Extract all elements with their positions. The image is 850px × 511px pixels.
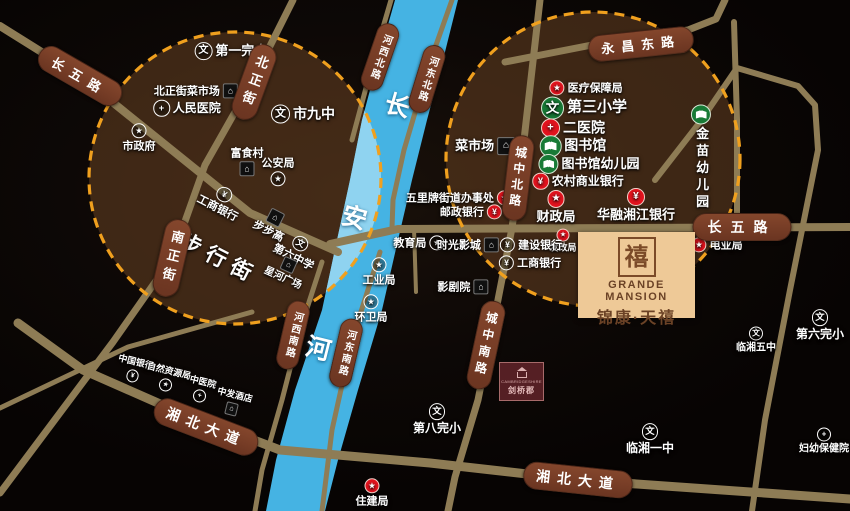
- place-label: 金苗幼儿园: [694, 127, 708, 212]
- building-icon: ⌂: [473, 279, 488, 294]
- place-label: 第六完小: [796, 328, 844, 341]
- place-label: 建设银行: [518, 239, 562, 251]
- place-label: 富食村: [231, 147, 264, 159]
- road-badge-changwu-lu-east: 长五路: [693, 213, 792, 241]
- star-icon: ★: [547, 190, 565, 208]
- star-icon: ★: [549, 80, 564, 95]
- bank-icon: ¥: [125, 368, 141, 384]
- place-label: 医疗保障局: [568, 82, 623, 94]
- building-icon: ⌂: [484, 237, 499, 252]
- place-label: 工商银行: [517, 257, 561, 269]
- book-icon: [538, 154, 558, 174]
- place-diliu-wanxiao: 文第六完小: [796, 309, 844, 341]
- school-icon: 文: [541, 97, 564, 120]
- place-jinmiao-youeryuan: 金苗幼儿园: [691, 104, 711, 211]
- place-renmin-yiyuan: +人民医院: [153, 100, 221, 117]
- place-label: 市九中: [293, 106, 335, 121]
- school-icon: 文: [749, 326, 763, 340]
- place-huarong-xiangjiang-yinhang: ¥华融湘江银行: [597, 188, 675, 222]
- road-badge-nanzheng-jie: 南正街: [150, 216, 194, 299]
- school-icon: 文: [195, 42, 213, 60]
- place-river-char-chang: 长: [381, 90, 413, 123]
- project-seal-character: 禧: [625, 245, 649, 269]
- hospital-icon: +: [817, 427, 831, 441]
- cambridgeshire-card: CAMBRIDGESHIRE 剑桥郡: [499, 362, 544, 401]
- place-zhongfa-jiudian: ⌂中发酒店: [213, 387, 254, 420]
- place-huanweiju: ★环卫局: [355, 294, 388, 323]
- place-label: 邮政银行: [440, 206, 484, 218]
- place-label: 妇幼保健院: [799, 444, 849, 455]
- place-label: 影剧院: [437, 281, 470, 293]
- building-icon: ⌂: [224, 401, 240, 417]
- place-ziran-ziyuanju: ★自然资源局: [142, 362, 192, 397]
- gov-icon: ★: [371, 257, 386, 272]
- place-diba-wanxiao: 文第八完小: [413, 403, 461, 435]
- place-gongshang-yinhang-west: ¥工商银行: [195, 178, 248, 224]
- place-nongcun-shangye-yinhang: ¥农村商业银行: [532, 173, 624, 190]
- road-badge-changwu-lu-west: 长五路: [33, 41, 127, 111]
- project-logo-card: 禧 GRANDE MANSION 锦康·天禧: [578, 232, 695, 318]
- place-label: 教育局: [393, 237, 426, 249]
- star-icon: ★: [364, 478, 379, 493]
- place-yingjuyuan: ⌂影剧院: [437, 279, 488, 294]
- place-label: 中医院: [188, 375, 217, 391]
- project-name-en: GRANDE MANSION: [578, 279, 695, 303]
- place-river-char-an: 安: [338, 202, 370, 235]
- place-label: 第八完小: [413, 422, 461, 435]
- building-body-icon: [517, 372, 527, 378]
- place-shijiuzhong: 文市九中: [271, 105, 335, 124]
- bank-icon: ¥: [499, 255, 514, 270]
- place-zhujianju: ★住建局: [356, 478, 389, 507]
- place-label: 时光影城: [437, 239, 481, 251]
- place-gongshang-yinhang-east: ¥工商银行: [499, 255, 561, 270]
- place-label: 人民医院: [173, 101, 221, 114]
- school-icon: 文: [429, 403, 446, 420]
- road-badge-hedong-nanlu: 河东南路: [327, 316, 365, 389]
- place-wulipai-jiedao-banshichu: ★五里牌街道办事处: [406, 190, 512, 205]
- place-label: 财政局: [536, 210, 575, 224]
- place-fuyou-baojianyuan: +妇幼保健院: [799, 427, 849, 454]
- place-zhongyiyuan: +中医院: [185, 375, 217, 406]
- gov-icon: ★: [131, 123, 146, 138]
- place-jianshe-yinhang: ¥建设银行: [500, 237, 562, 252]
- place-caizhengju: ★财政局: [536, 190, 575, 224]
- place-label: 五里牌街道办事处: [406, 192, 494, 204]
- place-tushuguan-youeryuan: 图书馆幼儿园: [538, 154, 639, 174]
- road-badge-hedong-beilu: 河东北路: [406, 42, 448, 116]
- place-label: 临湘一中: [626, 442, 674, 455]
- place-label: 菜市场: [455, 139, 494, 153]
- school-icon: 文: [642, 423, 659, 440]
- cambridgeshire-name-en: CAMBRIDGESHIRE: [501, 379, 542, 384]
- hospital-icon: +: [192, 388, 208, 404]
- project-seal-logo: 禧: [618, 237, 656, 277]
- book-icon: [691, 104, 711, 124]
- place-linxiang-yizhong: 文临湘一中: [626, 423, 674, 455]
- place-label: 图书馆: [564, 138, 606, 153]
- bank-icon: ¥: [500, 237, 515, 252]
- place-river-char-he: 河: [303, 334, 334, 367]
- place-fushicun: ⌂富食村: [231, 147, 264, 176]
- place-label: 河: [303, 334, 334, 367]
- place-label: 华融湘江银行: [597, 208, 675, 222]
- building-icon: ⌂: [239, 161, 254, 176]
- gov-icon: ★: [270, 171, 285, 186]
- place-label: 第三小学: [567, 100, 627, 117]
- project-name-cn: 锦康·天禧: [578, 304, 695, 328]
- gov-icon: ★: [363, 294, 378, 309]
- place-label: 市政府: [123, 141, 156, 153]
- road-badge-xiangbei-dadao-east: 湘北大道: [522, 460, 634, 499]
- hospital-icon: +: [153, 100, 170, 117]
- labels-layer: 文第一完小⌂北正街菜市场+人民医院文市九中★市政府⌂富食村★公安局¥工商银行⌂步…: [0, 0, 850, 511]
- place-gonganju: ★公安局: [262, 157, 295, 186]
- place-label: 图书馆幼儿园: [562, 157, 640, 171]
- place-label: 工业局: [363, 275, 396, 287]
- place-yiliao-baozhangju: ★医疗保障局: [549, 80, 622, 95]
- place-beizhengjie-caishichang: ⌂北正街菜市场: [154, 83, 238, 98]
- school-icon: 文: [812, 309, 829, 326]
- place-label: 二医院: [563, 120, 605, 135]
- place-label: 长: [381, 90, 413, 123]
- place-shiguang-yingcheng: ⌂时光影城: [437, 237, 499, 252]
- bank-icon: ¥: [532, 173, 549, 190]
- road-badge-yongchang-donglu: 永昌东路: [587, 25, 695, 63]
- place-gongyeju: ★工业局: [363, 257, 396, 286]
- cambridgeshire-name-cn: 剑桥郡: [508, 385, 535, 396]
- road-badge-hexi-beilu: 河西北路: [358, 20, 403, 94]
- place-label: 住建局: [356, 496, 389, 508]
- bank-icon: ¥: [627, 188, 645, 206]
- place-label: 临湘五中: [736, 343, 776, 354]
- gov-icon: ★: [158, 377, 174, 393]
- location-map: 文第一完小⌂北正街菜市场+人民医院文市九中★市政府⌂富食村★公安局¥工商银行⌂步…: [0, 0, 850, 511]
- place-disan-xiaoxue: 文第三小学: [541, 97, 627, 120]
- place-shizhengfu: ★市政府: [123, 123, 156, 152]
- place-label: 安: [338, 202, 370, 235]
- bank-icon: ¥: [487, 204, 502, 219]
- place-label: 北正街菜市场: [154, 85, 220, 97]
- place-linxiang-wuzhong: 文临湘五中: [736, 326, 776, 353]
- place-caishichang: ⌂菜市场: [455, 137, 515, 155]
- building-roof-icon: [517, 367, 527, 371]
- place-label: 公安局: [262, 157, 295, 169]
- school-icon: 文: [271, 105, 290, 124]
- place-youzheng-yinhang: ¥邮政银行: [440, 204, 502, 219]
- place-label: 农村商业银行: [552, 174, 624, 187]
